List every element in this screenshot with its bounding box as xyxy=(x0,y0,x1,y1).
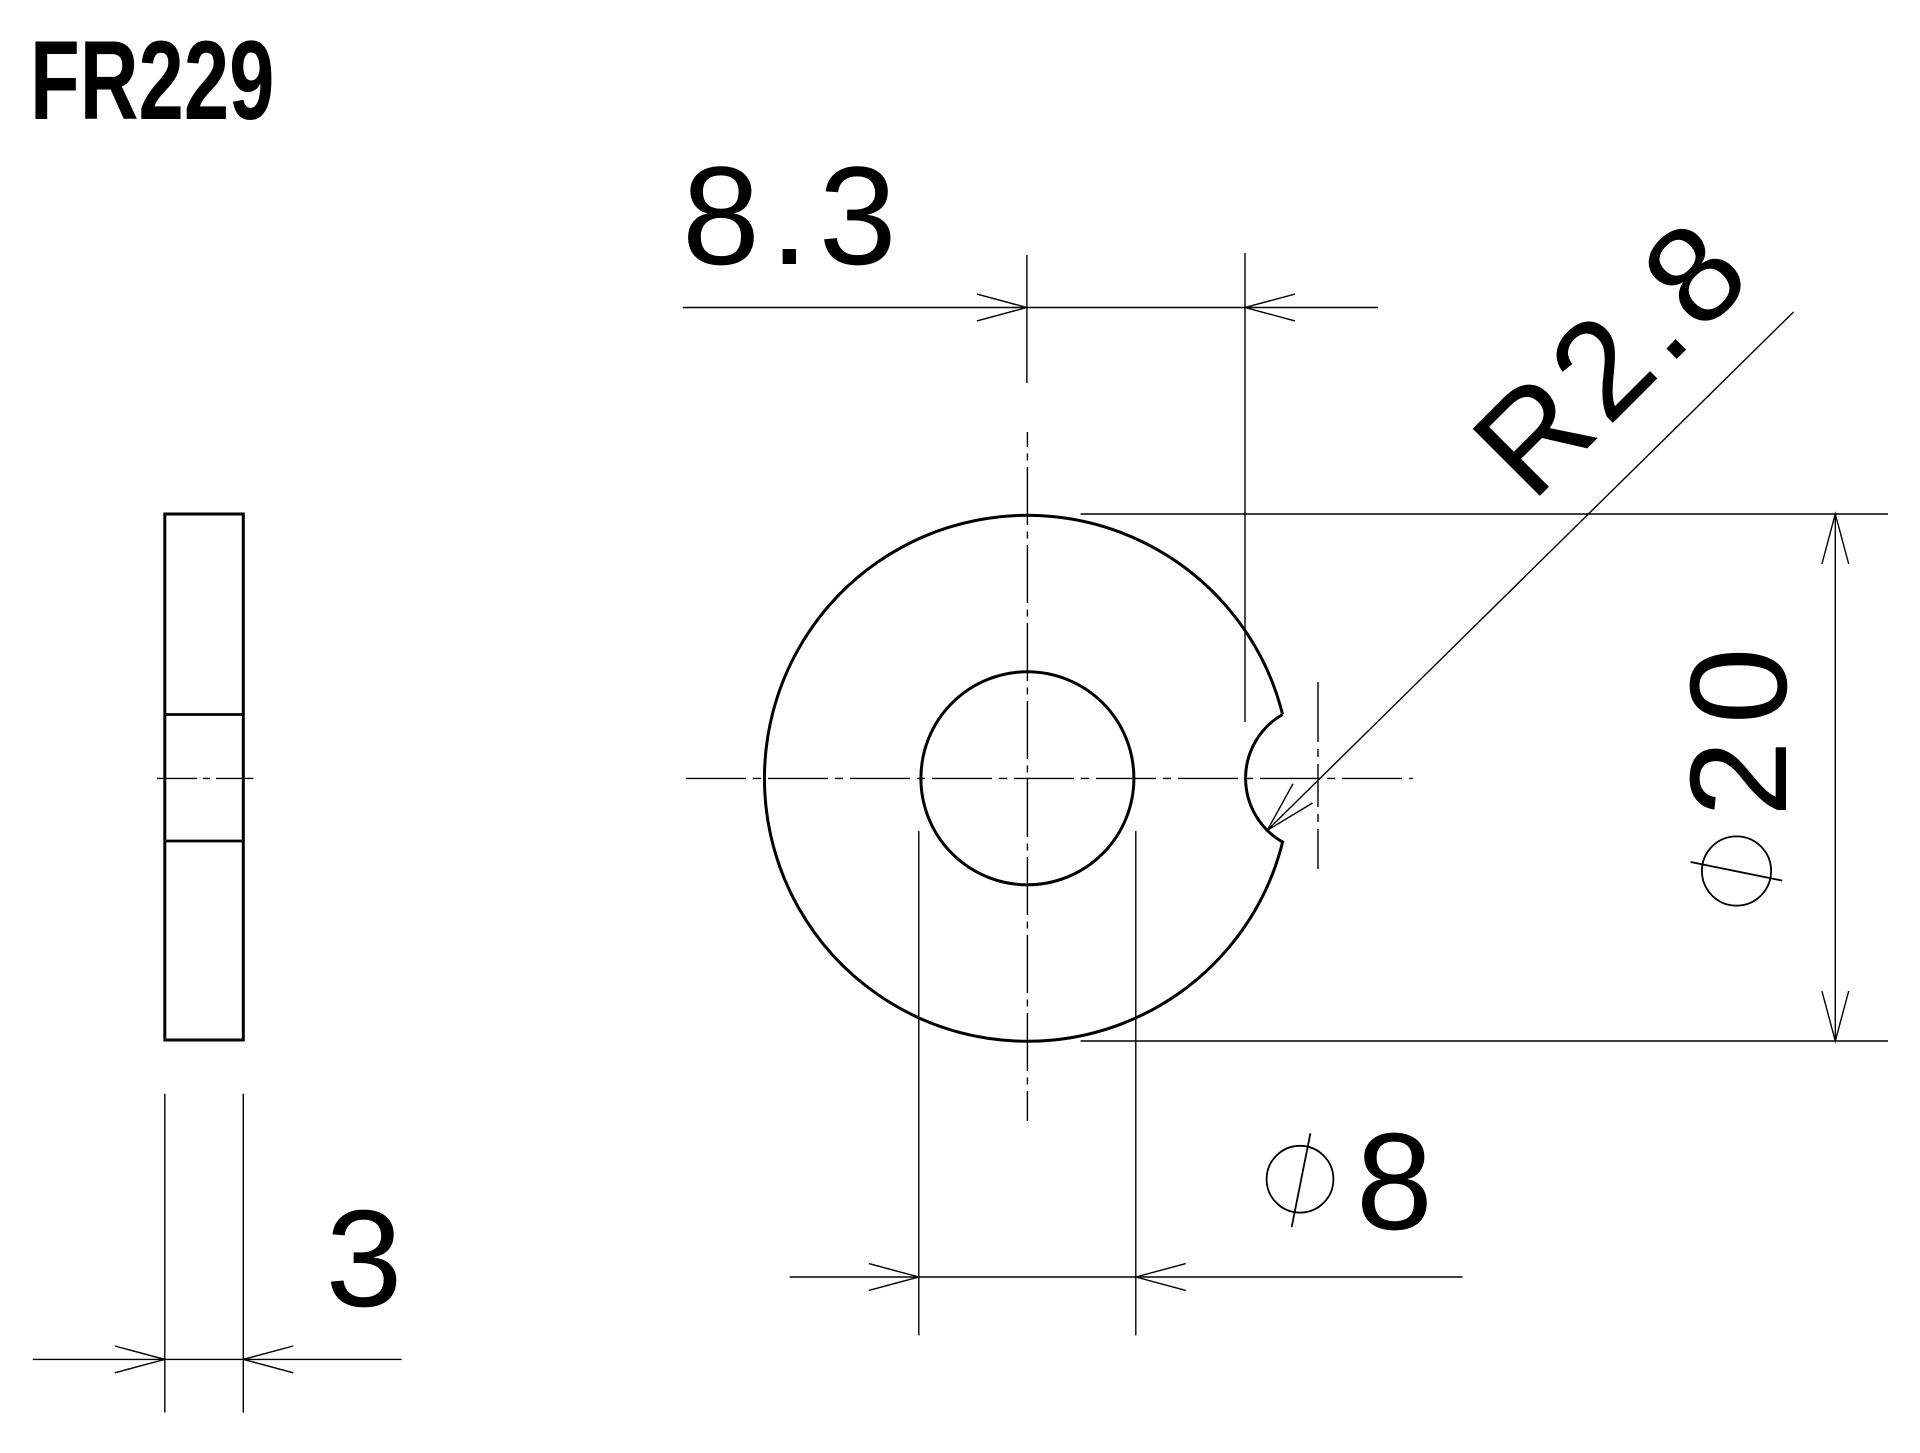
svg-text:20: 20 xyxy=(1662,632,1816,818)
svg-text:FR229: FR229 xyxy=(30,17,274,143)
svg-text:8: 8 xyxy=(1356,1105,1433,1259)
svg-text:3: 3 xyxy=(326,1182,403,1336)
svg-text:8.3: 8.3 xyxy=(682,137,907,294)
